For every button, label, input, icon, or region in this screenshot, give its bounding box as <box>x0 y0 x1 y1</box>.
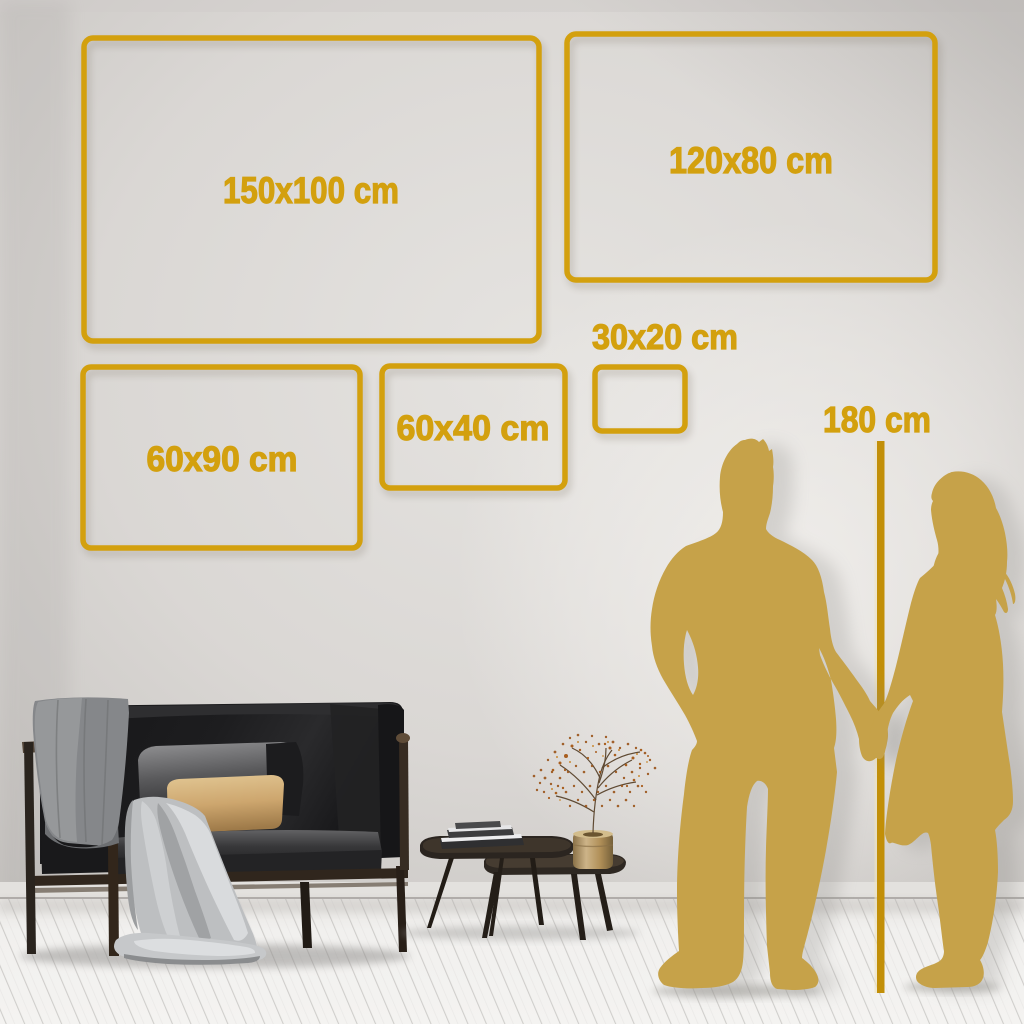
svg-text:180 cm: 180 cm <box>823 399 931 440</box>
svg-text:30x20 cm: 30x20 cm <box>592 318 738 357</box>
svg-text:120x80 cm: 120x80 cm <box>669 140 833 181</box>
svg-text:60x90 cm: 60x90 cm <box>147 440 298 479</box>
svg-text:150x100 cm: 150x100 cm <box>223 170 399 211</box>
svg-text:60x40 cm: 60x40 cm <box>397 409 550 448</box>
